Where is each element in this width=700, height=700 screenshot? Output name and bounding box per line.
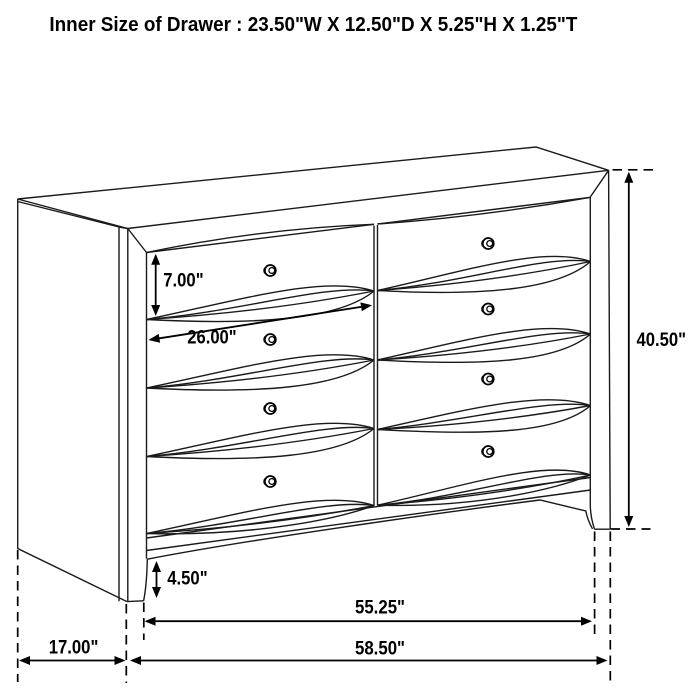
svg-text:17.00": 17.00"	[49, 638, 99, 659]
svg-text:Inner Size of Drawer : 23.50"W: Inner Size of Drawer : 23.50"W X 12.50"D…	[49, 14, 577, 36]
svg-text:7.00": 7.00"	[163, 271, 203, 292]
svg-text:4.50": 4.50"	[167, 569, 207, 590]
svg-text:26.00": 26.00"	[187, 328, 236, 349]
svg-text:58.50": 58.50"	[355, 639, 405, 660]
svg-text:40.50": 40.50"	[637, 330, 687, 351]
svg-text:55.25": 55.25"	[355, 598, 405, 619]
